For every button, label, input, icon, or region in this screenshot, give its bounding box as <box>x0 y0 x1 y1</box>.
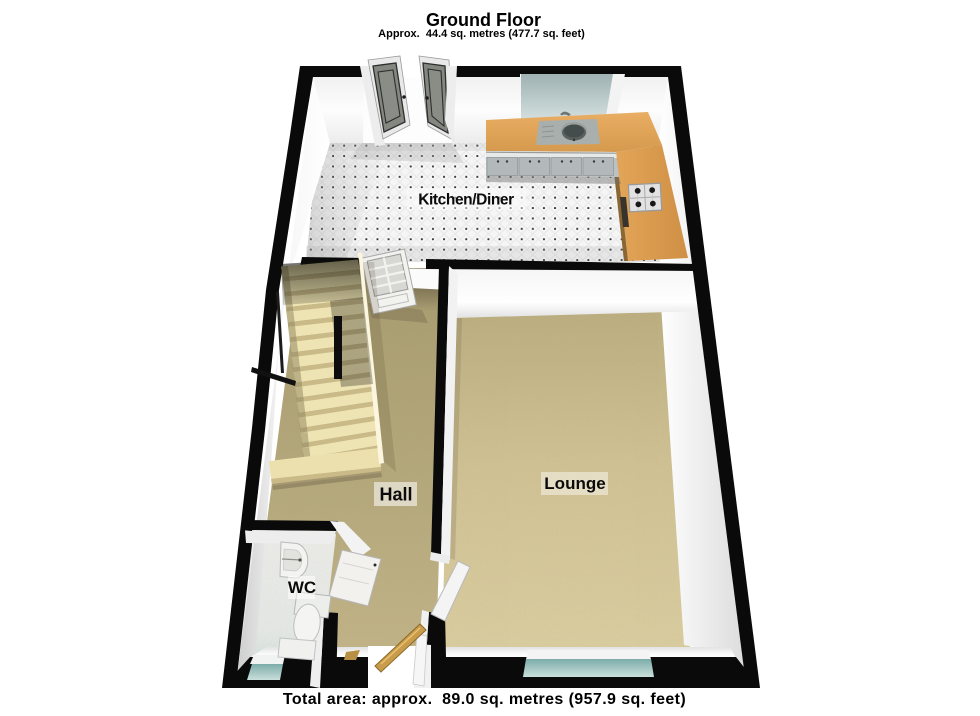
svg-text:Lounge: Lounge <box>544 474 605 493</box>
svg-text:WC: WC <box>288 578 316 597</box>
svg-text:Kitchen/Diner: Kitchen/Diner <box>418 192 514 209</box>
svg-text:Hall: Hall <box>379 485 412 505</box>
